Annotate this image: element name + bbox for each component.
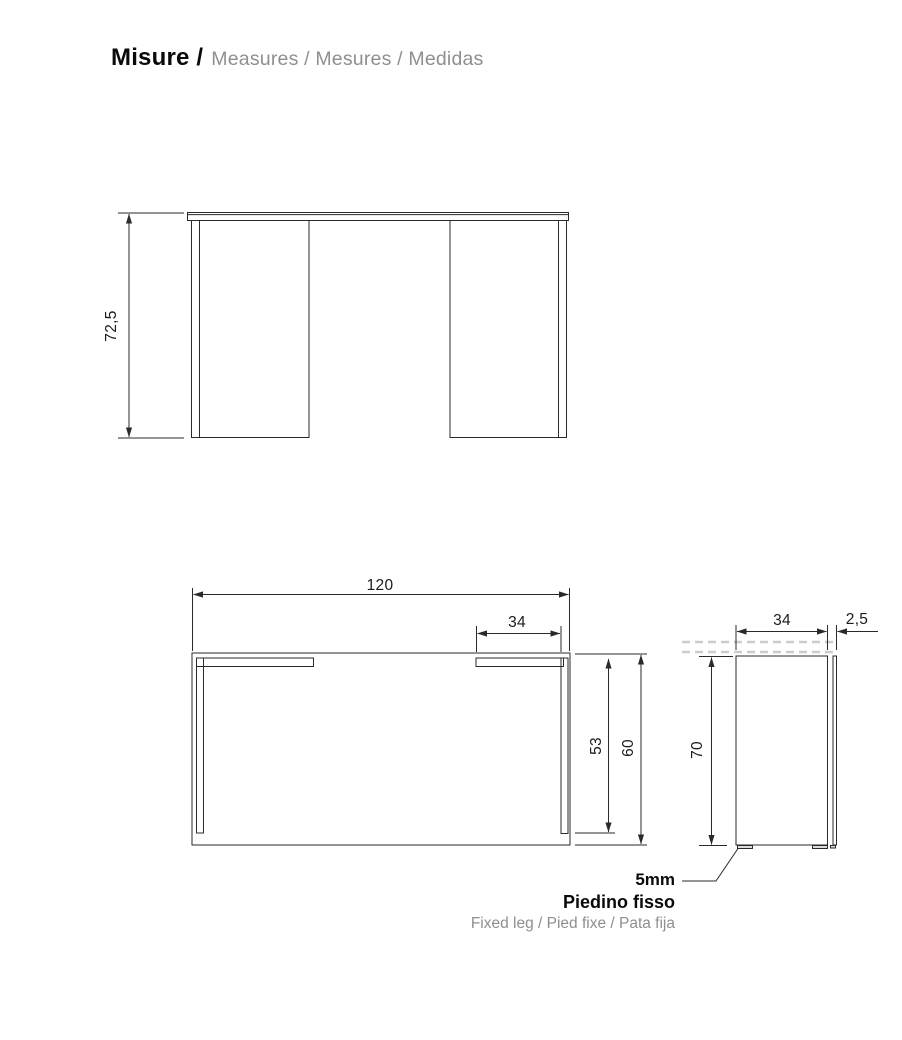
page-title-main: Misure / <box>111 44 203 72</box>
side-leg-panel <box>736 656 828 845</box>
front-view-drawing <box>118 213 569 439</box>
foot-translations-label: Fixed leg / Pied fixe / Pata fija <box>471 913 675 935</box>
page-title-translations: Measures / Mesures / Medidas <box>211 48 483 71</box>
top-leg-depth-label: 53 <box>588 737 606 755</box>
side-overhang-label: 2,5 <box>846 611 868 629</box>
measures-page: Misure / Measures / Mesures / Medidas 72… <box>0 0 902 1040</box>
dimension-front-height <box>118 213 184 438</box>
front-right-leg <box>450 221 567 438</box>
foot-leader-line <box>682 849 738 882</box>
top-view-drawing <box>192 588 647 845</box>
top-leg-length-label: 34 <box>508 614 526 632</box>
top-left-leg-top-bar <box>197 658 314 667</box>
side-panel-depth-label: 34 <box>773 612 791 630</box>
technical-drawing <box>0 0 902 1040</box>
front-desktop <box>188 213 569 221</box>
front-left-leg <box>192 221 310 438</box>
foot-name-label: Piedino fisso <box>471 891 675 913</box>
side-view-drawing <box>682 625 878 881</box>
foot-size-label: 5mm <box>471 869 675 891</box>
side-height-label: 70 <box>689 741 707 759</box>
top-right-leg-side-bar <box>561 658 568 834</box>
top-left-leg-side-bar <box>197 658 204 833</box>
front-height-label: 72,5 <box>103 310 121 341</box>
side-desktop-dashed <box>682 642 836 652</box>
top-depth-label: 60 <box>620 739 638 757</box>
page-title: Misure / Measures / Mesures / Medidas <box>111 44 484 72</box>
top-desktop-outline <box>192 653 570 845</box>
side-feet <box>738 846 836 849</box>
top-right-leg-top-bar <box>476 658 564 667</box>
side-leg-profile <box>833 656 837 845</box>
top-width-label: 120 <box>367 577 394 595</box>
foot-note: 5mm Piedino fisso Fixed leg / Pied fixe … <box>471 869 675 935</box>
